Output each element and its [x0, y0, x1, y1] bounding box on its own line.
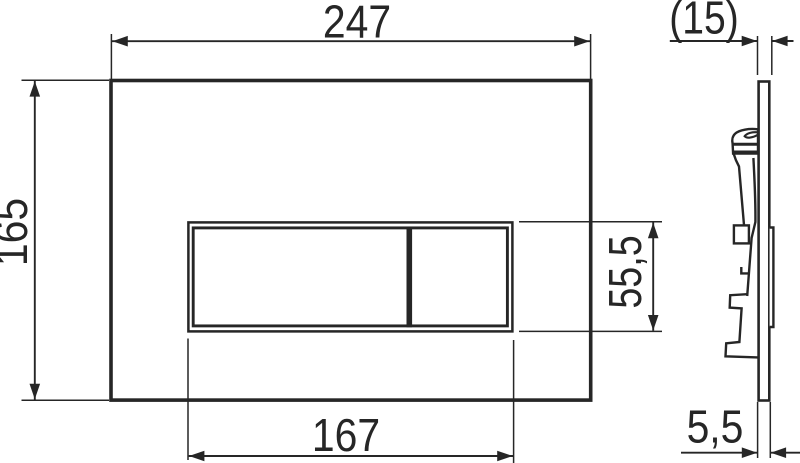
- svg-text:55,5: 55,5: [599, 235, 651, 308]
- svg-text:165: 165: [0, 198, 38, 266]
- svg-text:(15): (15): [669, 0, 738, 44]
- svg-text:5,5: 5,5: [687, 401, 744, 453]
- svg-text:167: 167: [312, 410, 380, 462]
- svg-text:247: 247: [323, 0, 391, 48]
